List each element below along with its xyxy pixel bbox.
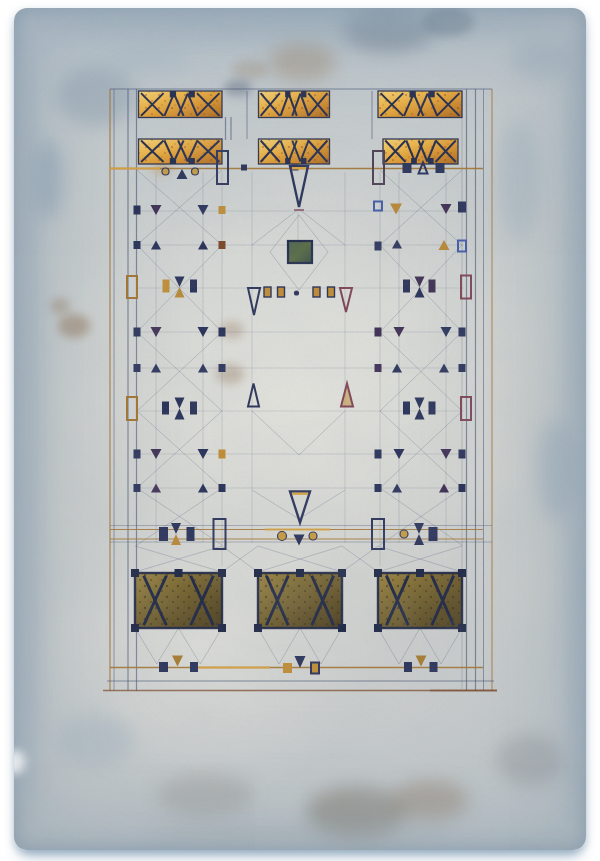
paper-grain [14, 8, 586, 850]
artwork-photo [0, 0, 600, 861]
window-design-drawing [0, 0, 600, 861]
